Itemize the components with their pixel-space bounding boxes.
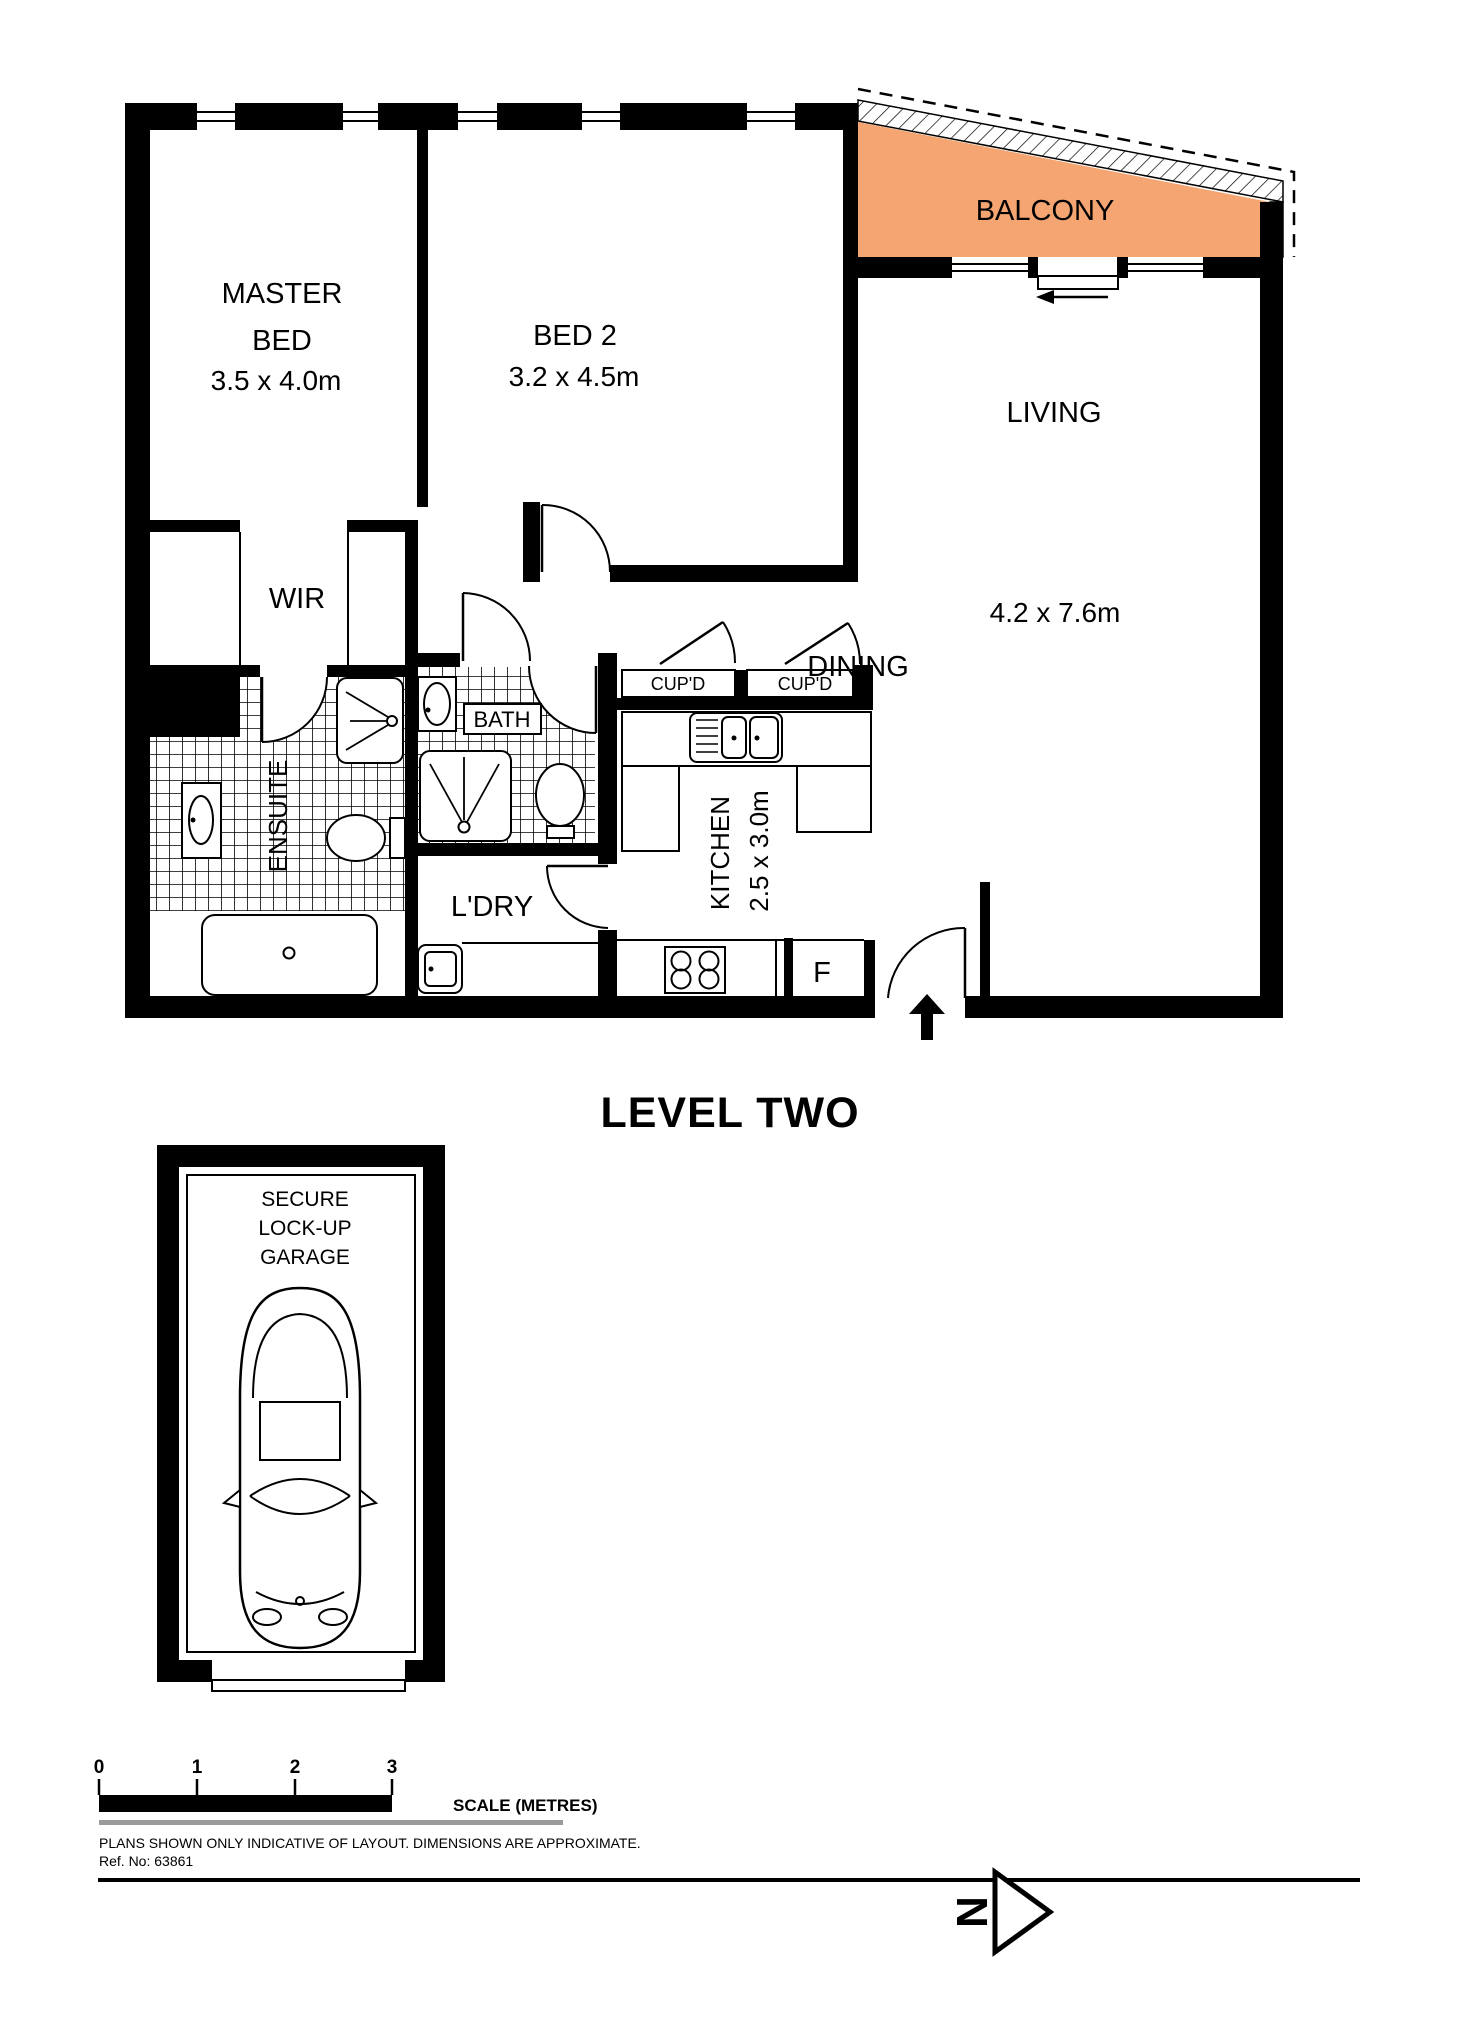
kitchen-sink-icon <box>690 713 782 762</box>
label-kitchen: KITCHEN <box>705 796 735 910</box>
toilet-icon <box>327 815 405 861</box>
north-arrow-icon: N <box>947 1872 1050 1952</box>
scale-tick-0: 0 <box>94 1757 105 1778</box>
label-cupboard-right: CUP'D <box>778 674 832 694</box>
label-fridge: F <box>813 957 831 989</box>
footer: PLANS SHOWN ONLY INDICATIVE OF LAYOUT. D… <box>98 1835 1360 1882</box>
label-bed2-dims: 3.2 x 4.5m <box>509 361 640 392</box>
ref-number: Ref. No: 63861 <box>99 1853 193 1869</box>
window-icon <box>343 103 378 130</box>
label-bed2: BED 2 <box>533 320 617 352</box>
shower-icon <box>337 678 403 763</box>
cooktop-icon <box>665 947 725 993</box>
door-laundry-icon <box>547 866 608 928</box>
label-master-dims: 3.5 x 4.0m <box>211 365 342 396</box>
label-master-bed: MASTER <box>222 278 343 310</box>
label-garage-1: SECURE <box>261 1188 349 1211</box>
vanity-icon <box>182 783 221 858</box>
label-living: LIVING <box>1006 397 1101 429</box>
floorplan-page: MASTER BED 3.5 x 4.0m BED 2 3.2 x 4.5m L… <box>0 0 1458 2042</box>
window-icon <box>458 103 497 130</box>
scale-label: SCALE (METRES) <box>453 1796 598 1815</box>
door-entry-icon <box>888 928 965 998</box>
bathtub-icon <box>202 915 377 995</box>
window-icon <box>582 103 620 130</box>
garage-door-opening <box>212 1660 405 1682</box>
scale-tick-1: 1 <box>192 1757 203 1778</box>
label-living-dims: 4.2 x 7.6m <box>990 597 1121 628</box>
kitchen-counter <box>622 766 679 851</box>
scale-bar: 0 1 2 3 SCALE (METRES) <box>94 1757 598 1825</box>
label-garage-2: LOCK-UP <box>258 1217 351 1240</box>
scale-tick-2: 2 <box>290 1757 301 1778</box>
label-master-bed-2: BED <box>252 325 312 357</box>
label-ensuite: ENSUITE <box>263 760 293 873</box>
label-balcony: BALCONY <box>976 195 1115 227</box>
door-bed2-icon <box>542 505 610 572</box>
laundry-fixtures <box>418 943 598 993</box>
scale-tick-3: 3 <box>387 1757 398 1778</box>
kitchen-counter <box>797 766 871 832</box>
car-icon <box>224 1288 376 1648</box>
window-icon <box>747 103 795 130</box>
balcony-area <box>858 89 1294 257</box>
floorplan-drawing: MASTER BED 3.5 x 4.0m BED 2 3.2 x 4.5m L… <box>0 0 1458 2042</box>
duct-void <box>150 665 240 737</box>
label-laundry: L'DRY <box>451 891 533 923</box>
label-garage-3: GARAGE <box>260 1246 350 1269</box>
window-icon <box>197 103 235 130</box>
label-kitchen-dims: 2.5 x 3.0m <box>744 790 774 911</box>
scale-bar-rect <box>99 1795 392 1812</box>
garage-door-icon <box>212 1680 405 1691</box>
sliding-door-icon <box>1036 257 1118 304</box>
label-bath: BATH <box>473 707 530 732</box>
window-icon <box>952 257 1028 278</box>
shower-icon <box>420 751 511 841</box>
disclaimer-text: PLANS SHOWN ONLY INDICATIVE OF LAYOUT. D… <box>99 1835 641 1851</box>
scale-gray-rule <box>99 1820 563 1825</box>
label-wir: WIR <box>269 583 325 615</box>
north-letter: N <box>947 1896 996 1928</box>
vanity-icon <box>418 677 456 731</box>
window-icon <box>1128 257 1203 278</box>
door-hall-icon <box>463 593 530 661</box>
page-title: LEVEL TWO <box>600 1089 859 1137</box>
footer-rule <box>98 1878 1360 1882</box>
label-cupboard-left: CUP'D <box>651 674 705 694</box>
laundry-tub-icon <box>418 945 462 993</box>
north-triangle <box>995 1872 1050 1952</box>
garage-area: SECURE LOCK-UP GARAGE <box>157 1145 445 1691</box>
